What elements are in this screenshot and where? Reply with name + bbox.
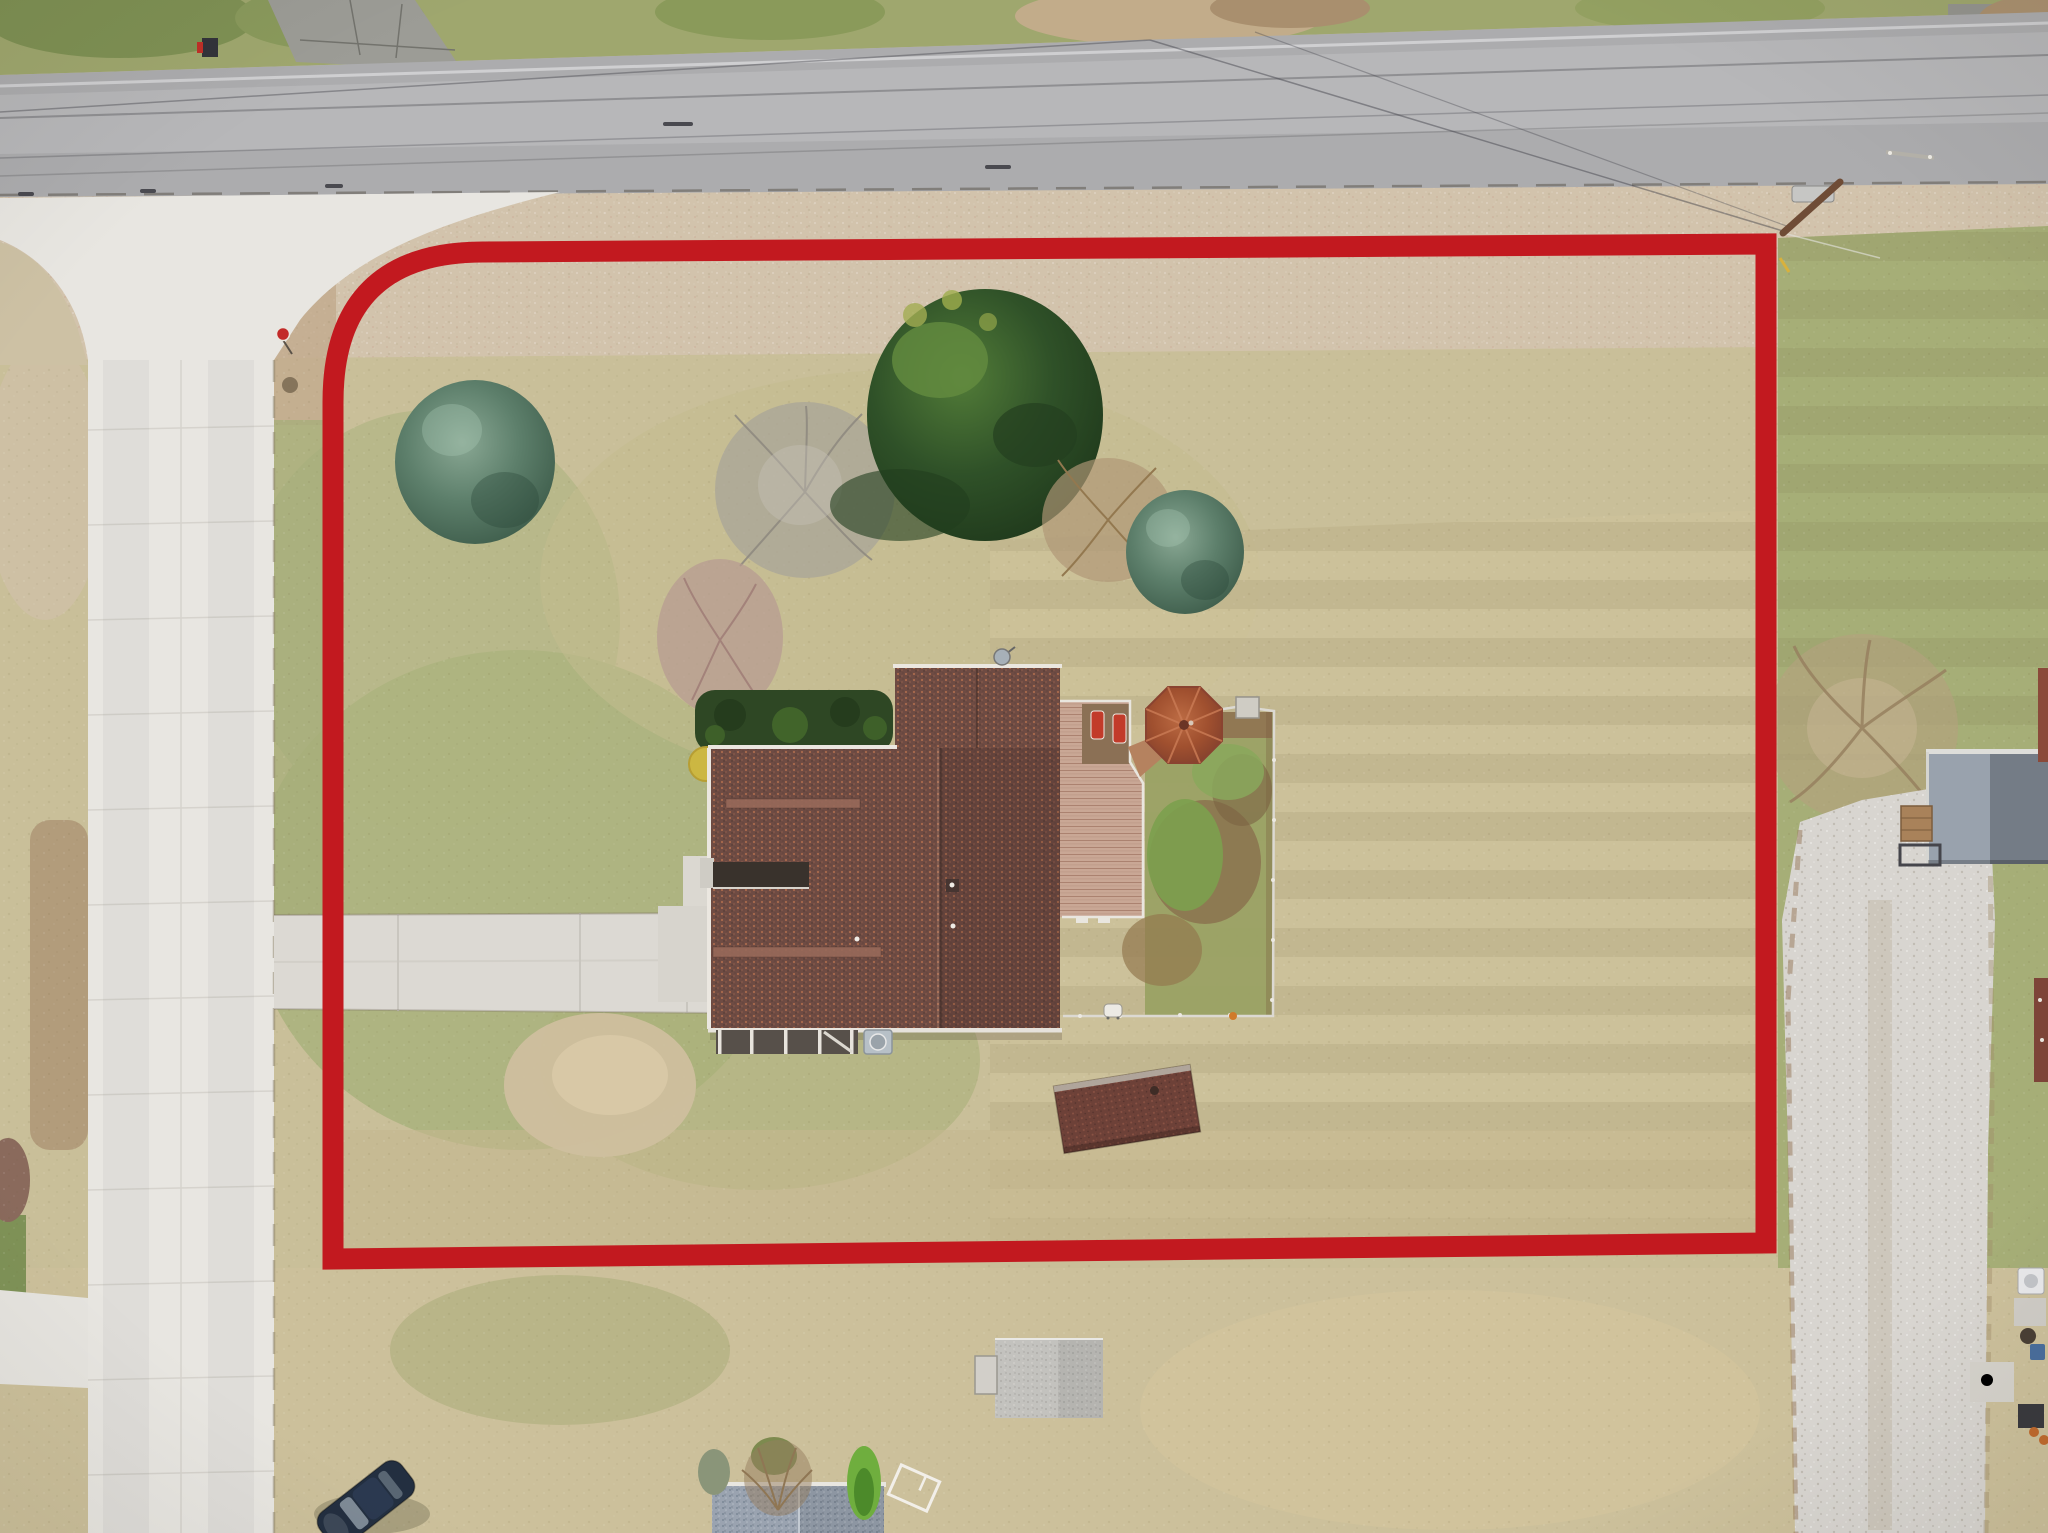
aerial-photo-canvas <box>0 0 2048 1533</box>
aerial-photo <box>0 0 2048 1533</box>
vignette <box>0 0 2048 1533</box>
